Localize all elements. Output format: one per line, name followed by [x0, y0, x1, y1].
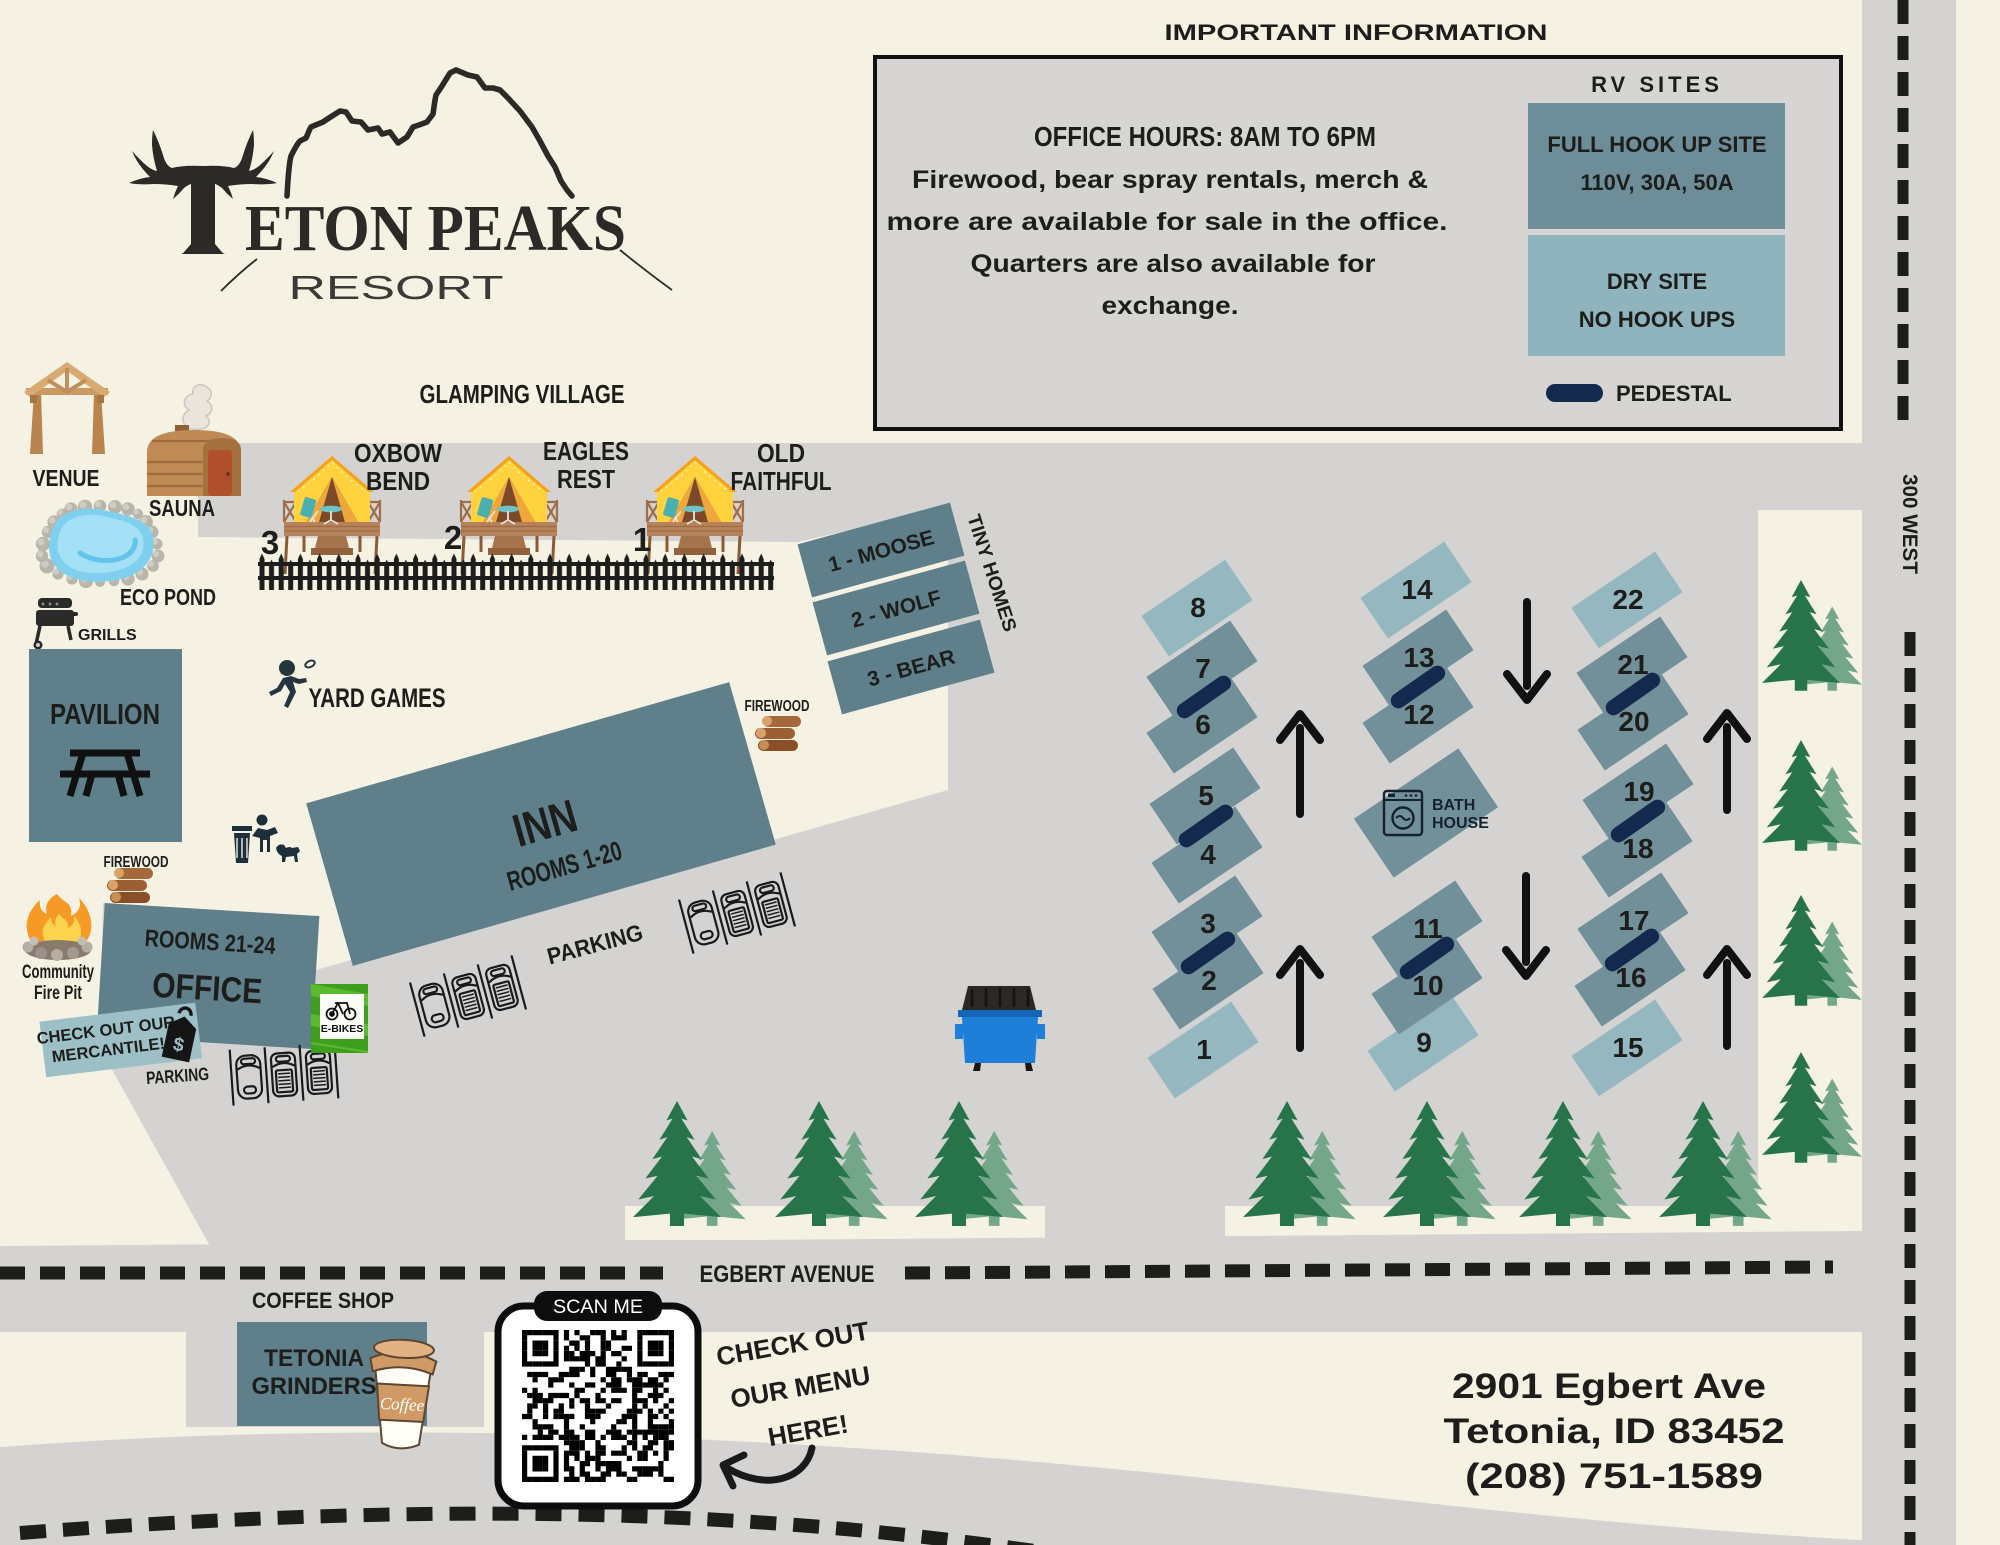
svg-text:20: 20 [1618, 706, 1649, 737]
svg-text:17: 17 [1618, 905, 1649, 936]
svg-text:19: 19 [1623, 776, 1654, 807]
svg-text:9: 9 [1416, 1027, 1432, 1058]
svg-text:8: 8 [1190, 592, 1206, 623]
svg-text:3: 3 [1200, 908, 1216, 939]
svg-text:2: 2 [1201, 965, 1217, 996]
svg-text:2901 Egbert Ave: 2901 Egbert Ave [1452, 1367, 1766, 1406]
svg-text:TETONIA: TETONIA [264, 1345, 364, 1372]
svg-text:HOUSE: HOUSE [1432, 815, 1489, 832]
svg-text:RV SITES: RV SITES [1591, 72, 1723, 97]
svg-text:Firewood, bear spray rentals,: Firewood, bear spray rentals, merch & [912, 166, 1428, 194]
svg-text:SCAN ME: SCAN ME [553, 1297, 643, 1318]
svg-text:Community: Community [22, 962, 94, 983]
svg-text:E-BIKES: E-BIKES [321, 1023, 364, 1035]
svg-text:1: 1 [633, 521, 651, 558]
svg-text:GLAMPING VILLAGE: GLAMPING VILLAGE [420, 379, 625, 409]
svg-text:more are available for sale in: more are available for sale in the offic… [887, 208, 1448, 236]
svg-text:PEDESTAL: PEDESTAL [1616, 381, 1732, 406]
svg-text:2: 2 [444, 519, 462, 556]
svg-text:14: 14 [1401, 574, 1433, 605]
svg-text:Tetonia, ID 83452: Tetonia, ID 83452 [1444, 1412, 1785, 1451]
svg-text:DRY SITE: DRY SITE [1607, 269, 1707, 294]
svg-text:5: 5 [1198, 780, 1214, 811]
svg-text:110V, 30A, 50A: 110V, 30A, 50A [1580, 170, 1733, 195]
svg-text:NO HOOK UPS: NO HOOK UPS [1579, 307, 1735, 332]
svg-text:OFFICE: OFFICE [151, 966, 263, 1012]
svg-text:BATH: BATH [1432, 797, 1475, 814]
svg-text:REST: REST [557, 464, 615, 494]
svg-text:15: 15 [1612, 1032, 1643, 1063]
svg-text:7: 7 [1195, 653, 1211, 684]
svg-text:BEND: BEND [366, 466, 430, 496]
svg-text:Quarters are also available fo: Quarters are also available for [971, 250, 1376, 278]
svg-text:EAGLES: EAGLES [543, 436, 629, 466]
svg-text:OLD: OLD [757, 438, 805, 468]
svg-text:21: 21 [1617, 649, 1648, 680]
svg-text:10: 10 [1412, 970, 1443, 1001]
svg-text:Coffee: Coffee [379, 1394, 425, 1415]
svg-text:GRILLS: GRILLS [78, 627, 137, 644]
svg-text:YARD GAMES: YARD GAMES [309, 683, 446, 713]
svg-text:ETON PEAKS: ETON PEAKS [245, 192, 626, 265]
svg-text:300 WEST: 300 WEST [1898, 474, 1921, 574]
svg-text:FULL HOOK UP SITE: FULL HOOK UP SITE [1547, 132, 1766, 157]
svg-text:FIREWOOD: FIREWOOD [745, 698, 810, 715]
svg-text:FAITHFUL: FAITHFUL [731, 466, 832, 496]
svg-text:VENUE: VENUE [33, 465, 100, 491]
svg-text:OXBOW: OXBOW [354, 438, 442, 468]
svg-text:SAUNA: SAUNA [149, 495, 215, 521]
svg-text:IMPORTANT INFORMATION: IMPORTANT INFORMATION [1165, 20, 1548, 45]
svg-text:Fire Pit: Fire Pit [34, 983, 82, 1004]
svg-text:11: 11 [1413, 913, 1443, 944]
svg-text:6: 6 [1195, 709, 1211, 740]
svg-text:EGBERT AVENUE: EGBERT AVENUE [700, 1261, 875, 1288]
svg-text:RESORT: RESORT [289, 269, 504, 306]
svg-text:ECO POND: ECO POND [120, 584, 216, 610]
svg-text:exchange.: exchange. [1102, 292, 1239, 320]
svg-text:PAVILION: PAVILION [50, 699, 160, 731]
svg-text:13: 13 [1403, 642, 1434, 673]
svg-text:12: 12 [1403, 699, 1434, 730]
svg-text:(208) 751-1589: (208) 751-1589 [1465, 1457, 1763, 1496]
svg-text:4: 4 [1200, 839, 1216, 870]
svg-text:COFFEE SHOP: COFFEE SHOP [252, 1288, 394, 1313]
svg-text:22: 22 [1612, 584, 1643, 615]
svg-text:OFFICE HOURS: 8AM TO 6PM: OFFICE HOURS: 8AM TO 6PM [1034, 121, 1376, 152]
svg-text:GRINDERS: GRINDERS [252, 1373, 377, 1400]
svg-text:1: 1 [1196, 1034, 1212, 1065]
